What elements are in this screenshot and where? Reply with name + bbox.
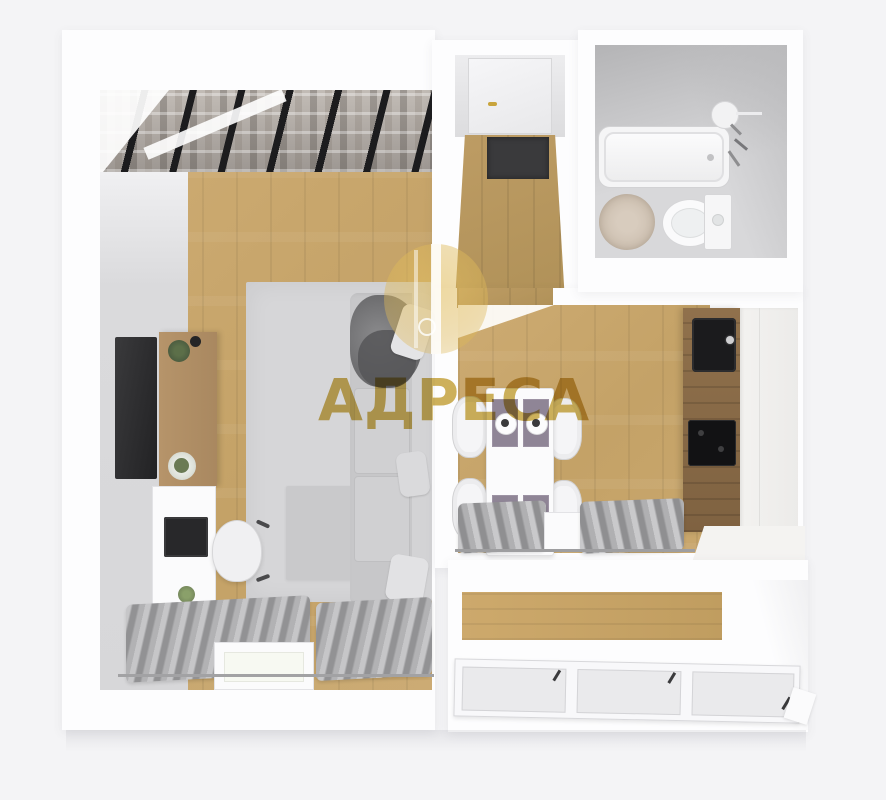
plant-leaves xyxy=(174,458,189,473)
door-handle xyxy=(488,102,497,106)
ceiling-light xyxy=(711,101,739,129)
curtain xyxy=(458,500,546,553)
bath-rug xyxy=(599,194,655,250)
bathtub-basin xyxy=(604,132,724,182)
desk-chair xyxy=(212,520,262,582)
bathroom xyxy=(578,30,803,292)
tv xyxy=(115,337,157,479)
kitchen-sink xyxy=(692,318,736,372)
window-sill xyxy=(544,512,584,552)
cooktop xyxy=(688,420,736,466)
tall-cabinets xyxy=(740,308,798,560)
floor-plan-render: АДРЕСА xyxy=(0,0,886,800)
curtain-rod xyxy=(455,549,695,552)
doormat xyxy=(487,137,549,179)
plant xyxy=(168,340,190,362)
window-pane xyxy=(577,669,682,715)
curtain xyxy=(316,597,432,681)
cooktop-burner xyxy=(718,446,724,452)
balcony xyxy=(448,560,808,732)
bathroom-interior xyxy=(595,45,787,258)
window-pane xyxy=(462,667,567,713)
pillow xyxy=(395,450,431,498)
entrance-door xyxy=(468,58,552,134)
shower-arm xyxy=(736,112,762,115)
curtain xyxy=(580,498,684,554)
balcony-window xyxy=(453,658,800,723)
hallway xyxy=(432,40,582,302)
decor-item xyxy=(190,336,201,347)
balcony-floor xyxy=(462,592,722,640)
curtain-rod xyxy=(118,674,434,677)
window-pane xyxy=(692,671,795,717)
faucet xyxy=(726,336,734,344)
ground-shadow xyxy=(66,730,806,752)
shower-mixer xyxy=(730,123,742,135)
plate xyxy=(526,413,548,435)
cabinet-seam xyxy=(759,308,760,560)
laptop xyxy=(164,517,208,557)
shower-mixer xyxy=(734,138,748,151)
kitchen xyxy=(435,288,803,568)
placemat xyxy=(523,399,549,447)
flush-button xyxy=(712,214,724,226)
bathtub xyxy=(598,126,730,188)
living-room xyxy=(62,30,435,730)
placemat xyxy=(492,399,518,447)
cooktop-burner xyxy=(698,430,704,436)
window-glass xyxy=(224,652,304,682)
dining-chair xyxy=(452,396,488,458)
bathtub-drain xyxy=(707,154,714,161)
plate xyxy=(495,413,517,435)
